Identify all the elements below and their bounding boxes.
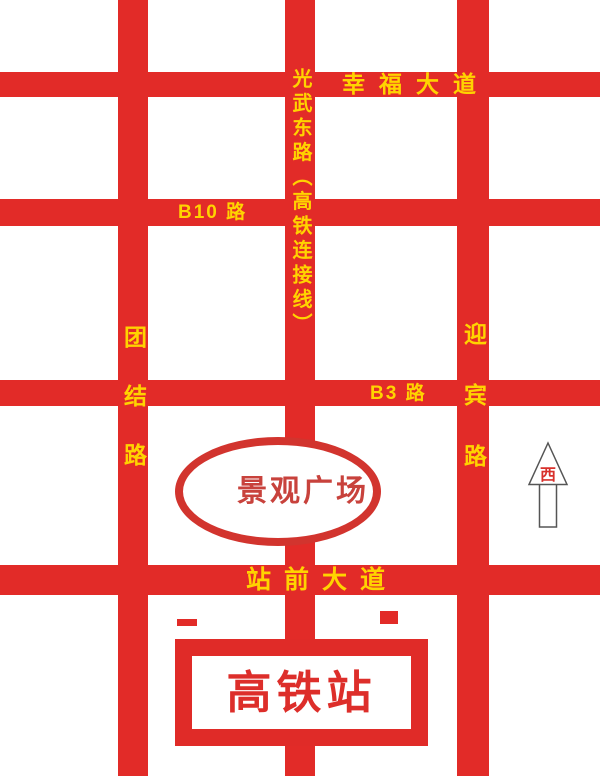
hsr-station-label: 高铁站 (226, 670, 376, 715)
hsr-station-box: 高铁站 (175, 639, 428, 746)
road-label-zhanqian-avenue: 站前大道 (246, 565, 398, 595)
compass-west-label: 西 (540, 466, 556, 484)
road-stub-mark-left (177, 619, 197, 626)
landscape-plaza-label: 景观广场 (237, 477, 369, 507)
landscape-plaza-ellipse: 景观广场 (175, 437, 381, 546)
road-label-tuanjie: 团结路 (118, 325, 148, 776)
road-label-yingbin-text: 迎宾路 (462, 322, 485, 505)
road-label-xingfu-avenue: 幸福大道 (342, 72, 490, 97)
road-label-yingbin: 迎宾路 (457, 322, 489, 776)
compass-west-arrow-icon: 西 (527, 441, 569, 529)
road-label-guangwu-east: 光武东路（高铁连接线） (285, 68, 315, 406)
road-stub-mark-right (380, 611, 398, 624)
road-label-tuanjie-text: 团结路 (122, 325, 145, 502)
road-label-b3: B3 路 (370, 380, 427, 406)
station-area-road-map: 幸福大道 B10 路 B3 路 站前大道 团结路 光武东路（高铁连接线） 迎宾路… (0, 0, 600, 776)
road-label-guangwu-east-text: 光武东路（高铁连接线） (290, 68, 310, 338)
road-label-b10: B10 路 (178, 199, 247, 226)
